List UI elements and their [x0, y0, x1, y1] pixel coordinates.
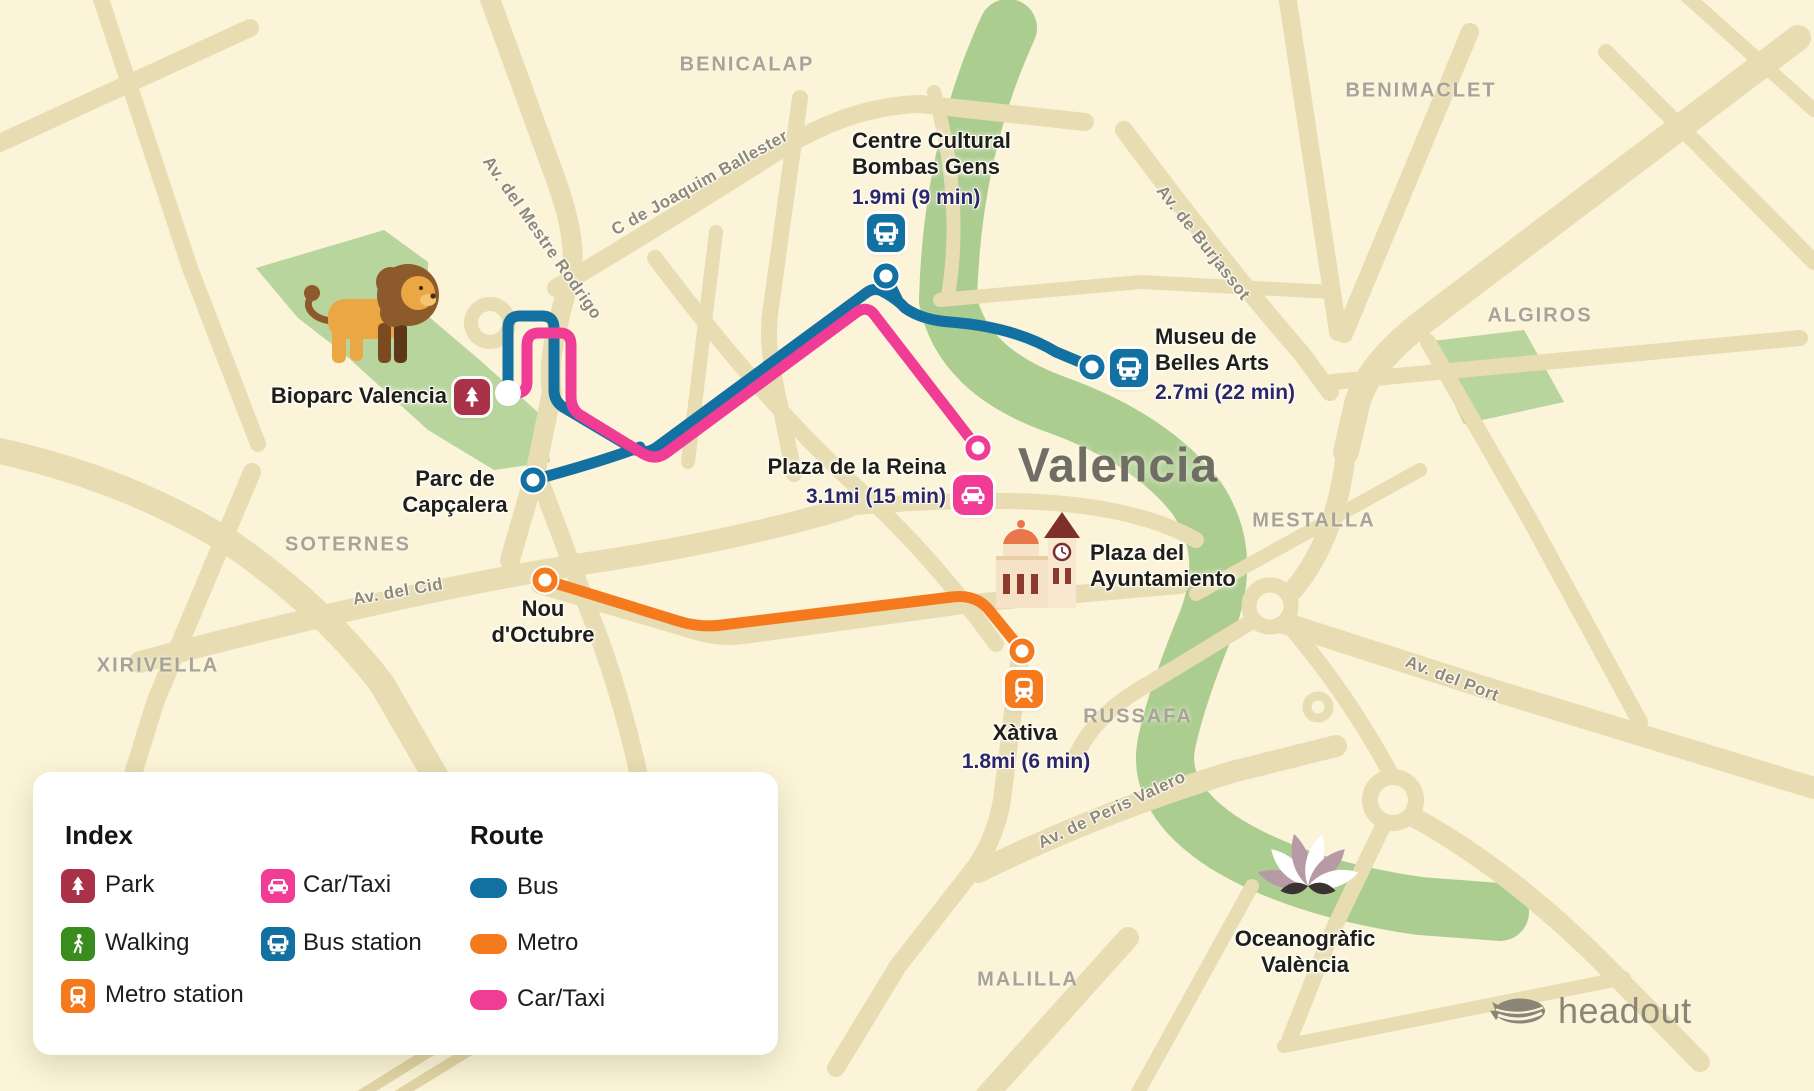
poi-distance-xativa: 1.8mi (6 min) [962, 750, 1090, 774]
metro-route-swatch [470, 934, 507, 954]
poi-label-bombas-gens: Centre Cultural Bombas Gens [852, 128, 1011, 181]
legend-panel: Index Route Park Walking [33, 772, 778, 1055]
district-label-xirivella: XIRIVELLA [97, 655, 219, 678]
poi-label-nou-octubre: Nou d'Octubre [491, 596, 594, 649]
metro-station-icon [1005, 670, 1043, 708]
bus-station-icon [261, 927, 295, 961]
walker-icon [66, 932, 90, 956]
district-label-benimaclet: BENIMACLET [1345, 80, 1496, 103]
poi-distance-bombas-gens: 1.9mi (9 min) [852, 186, 980, 210]
legend-index-title: Index [65, 820, 133, 851]
poi-label-ayuntamiento: Plaza del Ayuntamiento [1090, 540, 1236, 593]
valencia-transit-map: Valencia BENICALAP BENIMACLET ALGIROS SO… [0, 0, 1814, 1091]
legend-item-car-taxi: Car/Taxi [303, 871, 391, 899]
stop-marker-xativa [1008, 637, 1037, 666]
poi-distance-belles-arts: 2.7mi (22 min) [1155, 381, 1295, 405]
metro-station-icon [61, 979, 95, 1013]
bus-station-icon [1110, 349, 1148, 387]
bus-icon [872, 219, 900, 247]
stop-marker-plaza-reina [964, 434, 993, 463]
tree-icon [459, 384, 485, 410]
blimp-icon [1488, 992, 1548, 1030]
stop-marker-parc-capcalera [519, 466, 548, 495]
stop-marker-bioparc [495, 380, 521, 406]
tree-icon [66, 874, 90, 898]
stop-marker-belles-arts [1078, 353, 1107, 382]
car-taxi-route-swatch [470, 990, 507, 1010]
district-label-mestalla: MESTALLA [1252, 510, 1375, 533]
legend-route-metro: Metro [517, 929, 578, 957]
district-label-soternes: SOTERNES [285, 534, 411, 557]
walking-icon [61, 927, 95, 961]
legend-item-park: Park [105, 871, 154, 899]
legend-item-bus-station: Bus station [303, 929, 422, 957]
city-label: Valencia [1018, 439, 1218, 494]
poi-label-parc-capcalera: Parc de Capçalera [402, 466, 507, 519]
poi-distance-plaza-reina: 3.1mi (15 min) [806, 485, 946, 509]
legend-item-metro-station: Metro station [105, 981, 244, 1009]
legend-item-walking: Walking [105, 929, 189, 957]
bus-station-icon [867, 214, 905, 252]
brand-name: headout [1558, 990, 1692, 1032]
district-label-algiros: ALGIROS [1487, 305, 1592, 328]
bus-route-swatch [470, 878, 507, 898]
bus-icon [1115, 354, 1143, 382]
park-icon [61, 869, 95, 903]
church-illustration [996, 512, 1080, 608]
poi-label-xativa: Xàtiva [993, 720, 1058, 746]
car-taxi-icon [261, 869, 295, 903]
legend-route-bus: Bus [517, 873, 558, 901]
poi-label-belles-arts: Museu de Belles Arts [1155, 324, 1269, 377]
train-icon [1010, 675, 1038, 703]
district-label-benicalap: BENICALAP [680, 54, 815, 77]
car-icon [265, 873, 291, 899]
car-taxi-icon [953, 475, 993, 515]
district-label-russafa: RUSSAFA [1083, 706, 1193, 729]
train-icon [66, 984, 90, 1008]
headout-logo: headout [1488, 990, 1692, 1032]
park-icon [454, 379, 490, 415]
bus-icon [266, 932, 290, 956]
poi-label-bioparc: Bioparc Valencia [271, 383, 447, 409]
stop-marker-nou-octubre [531, 566, 560, 595]
legend-route-title: Route [470, 820, 544, 851]
poi-label-oceanografic: Oceanogràfic València [1235, 926, 1376, 979]
stop-marker-bombas-gens [872, 262, 901, 291]
legend-route-car-taxi: Car/Taxi [517, 985, 605, 1013]
district-label-malilla: MALILLA [977, 969, 1079, 992]
poi-label-plaza-reina: Plaza de la Reina [767, 454, 946, 480]
car-icon [958, 480, 988, 510]
